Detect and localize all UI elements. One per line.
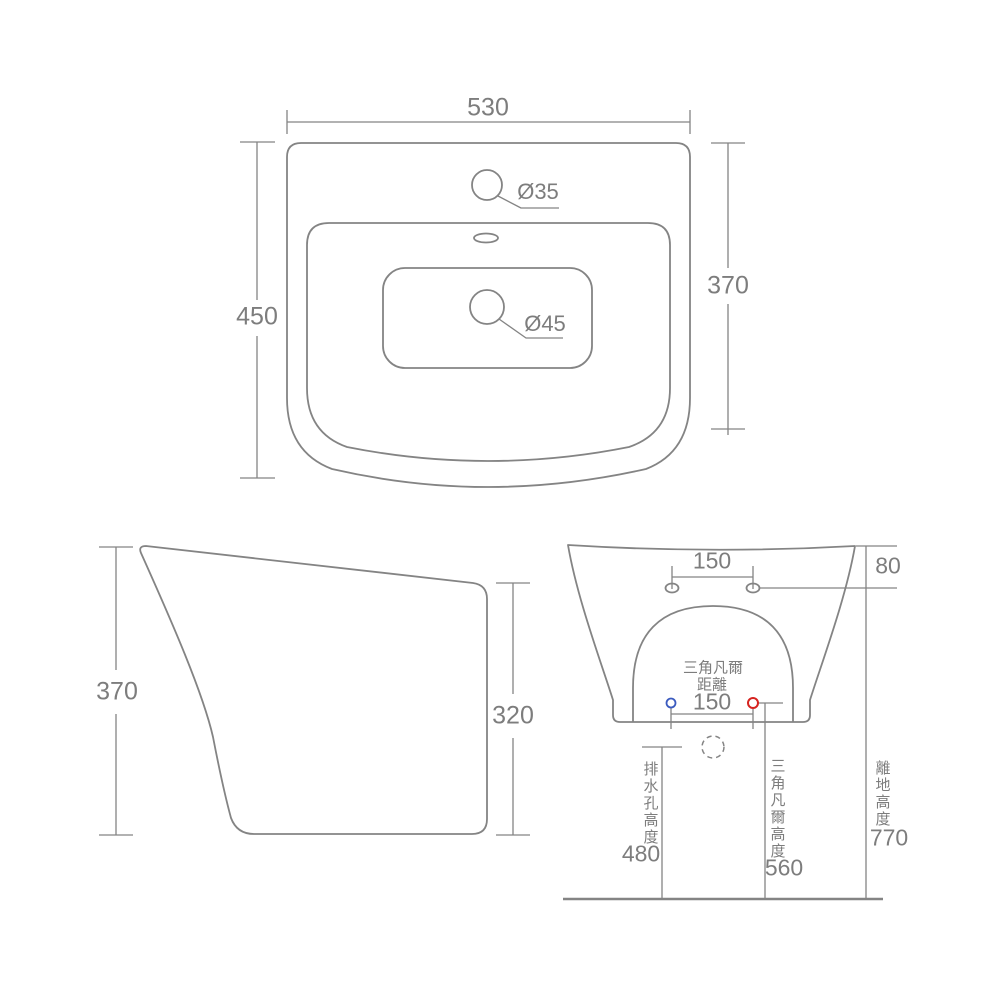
drain-height-caption: 排水孔高度 [643, 761, 658, 846]
valve-height-caption: 三角凡爾高度 [770, 758, 785, 860]
overflow-hole [474, 234, 498, 243]
drain-hole-diameter-label: Ø45 [524, 313, 566, 335]
top-view-basin-depth-label: 370 [707, 274, 749, 299]
mount-drop-label: 80 [875, 555, 901, 578]
valve-spacing-label: 150 [693, 691, 731, 714]
faucet-hole-diameter-label: Ø35 [517, 181, 559, 203]
drain-hole [470, 290, 504, 324]
front-view [563, 545, 897, 899]
side-profile-outline [140, 546, 487, 834]
drain-outlet-dashed [702, 736, 724, 758]
hot-valve-marker [748, 698, 758, 708]
technical-drawing-linework [0, 0, 1000, 1000]
valve-height-label: 560 [765, 857, 803, 880]
valve-caption-line1: 三角凡爾 [683, 661, 743, 676]
cold-valve-marker [667, 699, 676, 708]
top-view [240, 110, 745, 487]
mount-spacing-label: 150 [693, 550, 731, 573]
top-view-depth-label: 450 [236, 305, 278, 330]
floor-clearance-caption: 離地高度 [875, 760, 890, 828]
side-view-back-height-label: 320 [492, 704, 534, 729]
floor-clearance-label: 770 [870, 827, 908, 850]
faucet-hole [472, 170, 502, 200]
basin-outer-outline [287, 143, 690, 487]
side-view-height-label: 370 [96, 680, 138, 705]
drain-height-label: 480 [622, 843, 660, 866]
top-view-width-label: 530 [467, 96, 509, 121]
basin-dimension-drawing: 530 450 370 Ø35 Ø45 370 320 150 80 三角凡爾 … [0, 0, 1000, 1000]
basin-rim-outline [307, 223, 670, 461]
side-view [99, 546, 530, 835]
